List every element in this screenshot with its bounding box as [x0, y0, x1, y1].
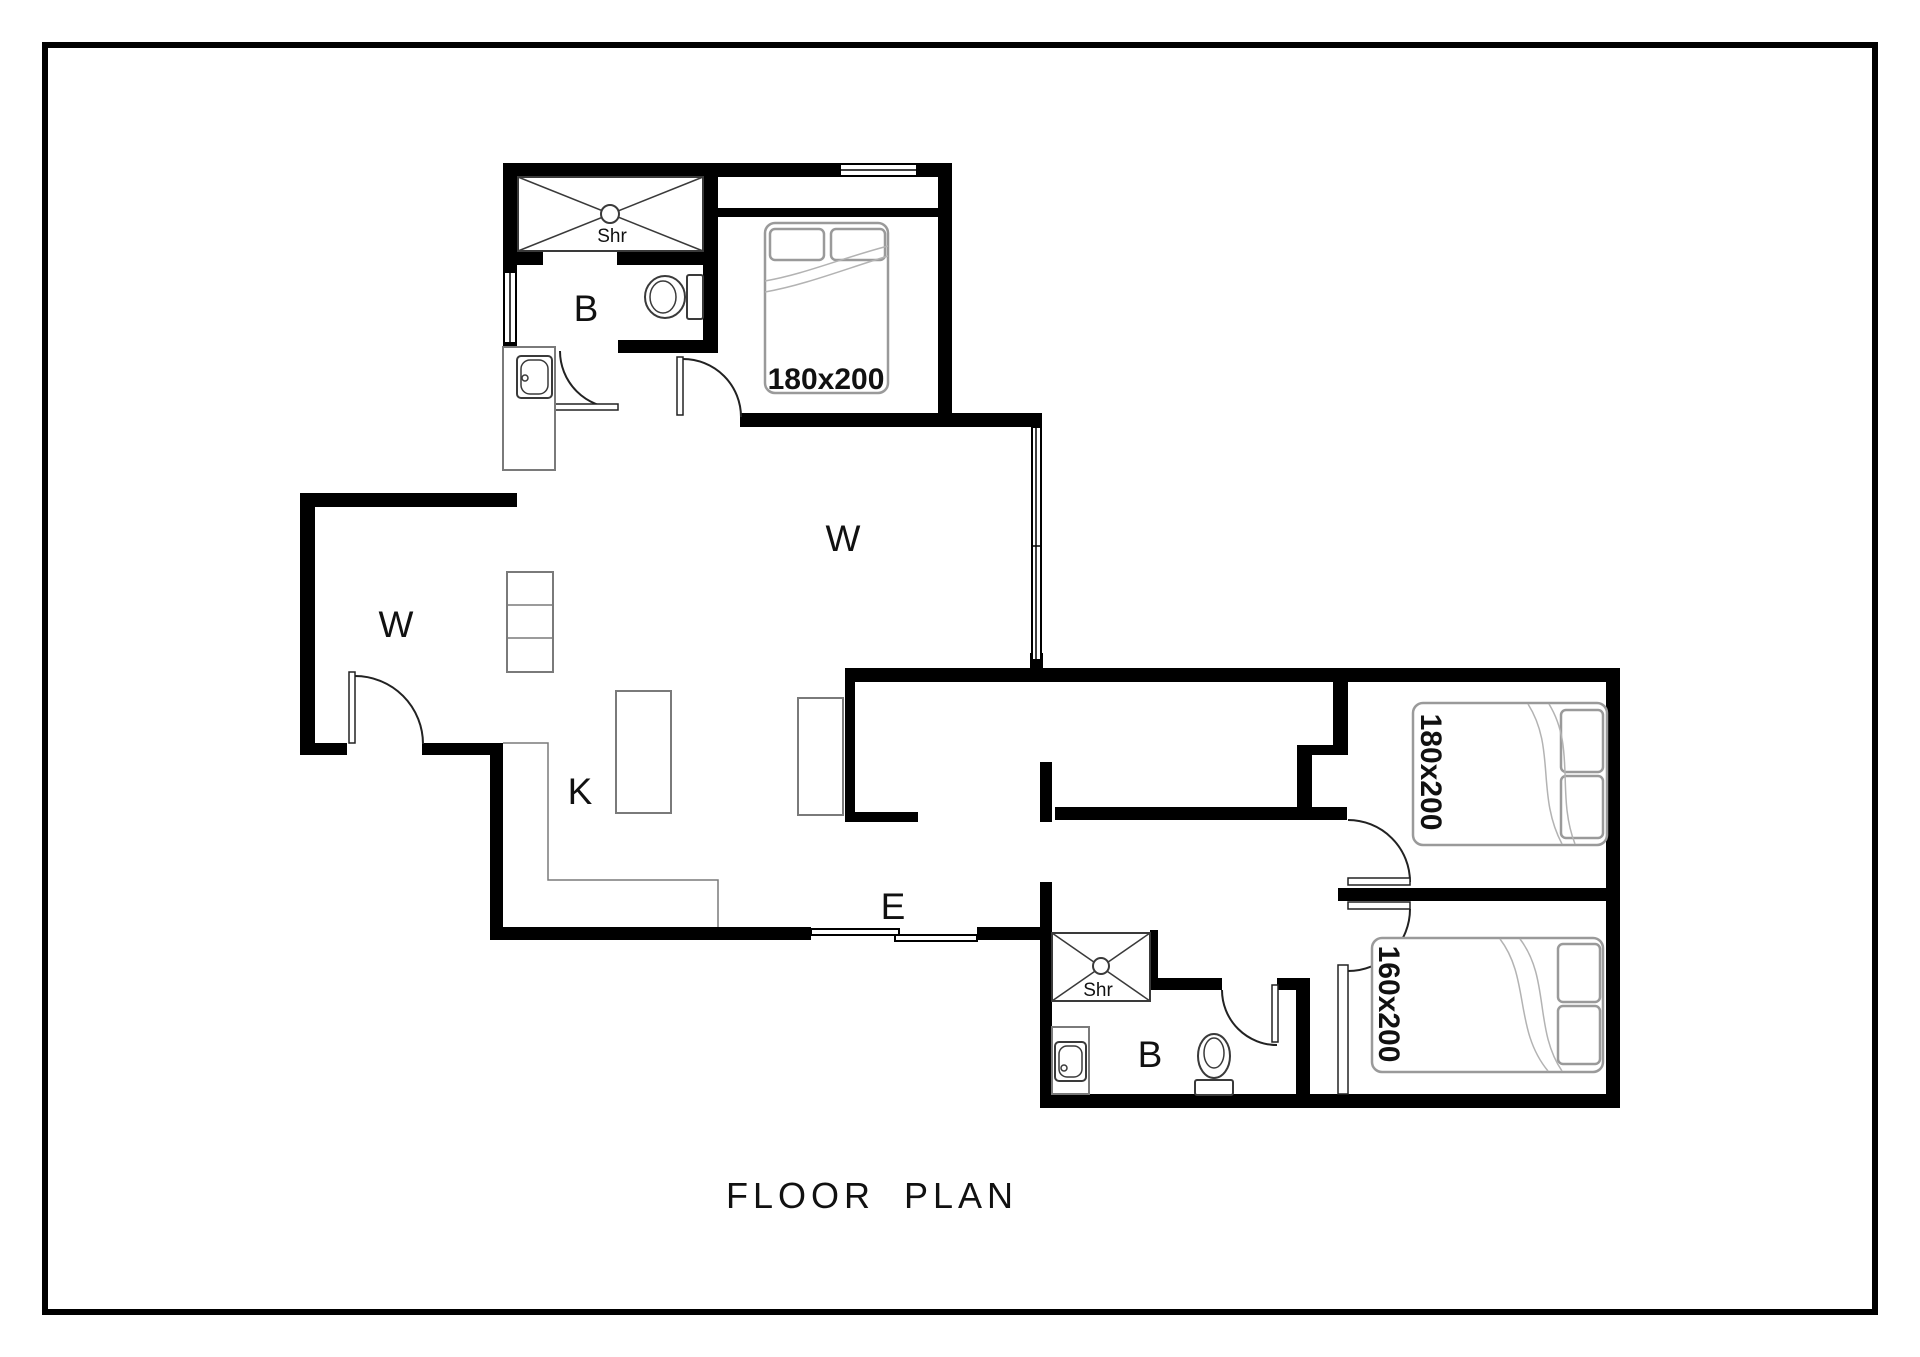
left-room-label: W: [379, 604, 414, 645]
door-left-room: [349, 672, 423, 744]
bed-right-top-size-label: 180x200: [1414, 714, 1447, 831]
window-top-bedroom: [840, 164, 917, 176]
entrance-threshold: [811, 929, 977, 941]
thin-partition: [1338, 965, 1348, 1094]
bed-right-bottom-icon: [1372, 938, 1603, 1072]
bed-master-size-label: 180x200: [768, 363, 885, 396]
shower-top-label: Shr: [597, 226, 627, 247]
sink-bottom-icon: [1052, 1027, 1089, 1094]
page-title: FLOOR PLAN: [726, 1175, 1018, 1216]
kitchen-island: [616, 691, 671, 813]
window-left-bath: [504, 272, 516, 343]
door-bedroom-right-top: [1348, 820, 1410, 885]
kitchen-counter: [503, 743, 718, 927]
door-bath-top: [548, 351, 618, 410]
floor-plan-canvas: Shr Shr B W W K E B 180x200 180x200 160x…: [0, 0, 1920, 1357]
sink-top-icon: [503, 347, 555, 470]
kitchen-label: K: [568, 771, 593, 812]
bed-right-bottom-size-label: 160x200: [1372, 946, 1405, 1063]
toilet-bottom-icon: [1195, 1034, 1233, 1095]
cabinet: [507, 572, 553, 672]
floor-plan-page: Shr Shr B W W K E B 180x200 180x200 160x…: [0, 0, 1920, 1357]
living-label: W: [826, 518, 861, 559]
entry-label: E: [881, 886, 906, 927]
window-living-east: [1031, 427, 1042, 660]
toilet-top-icon: [645, 275, 703, 319]
bath-top-label: B: [574, 288, 599, 329]
sideboard: [798, 698, 843, 815]
shower-bottom-label: Shr: [1083, 980, 1113, 1001]
door-bath-bottom: [1222, 985, 1278, 1045]
door-master-bedroom: [677, 357, 741, 417]
bath-bottom-label: B: [1138, 1034, 1163, 1075]
